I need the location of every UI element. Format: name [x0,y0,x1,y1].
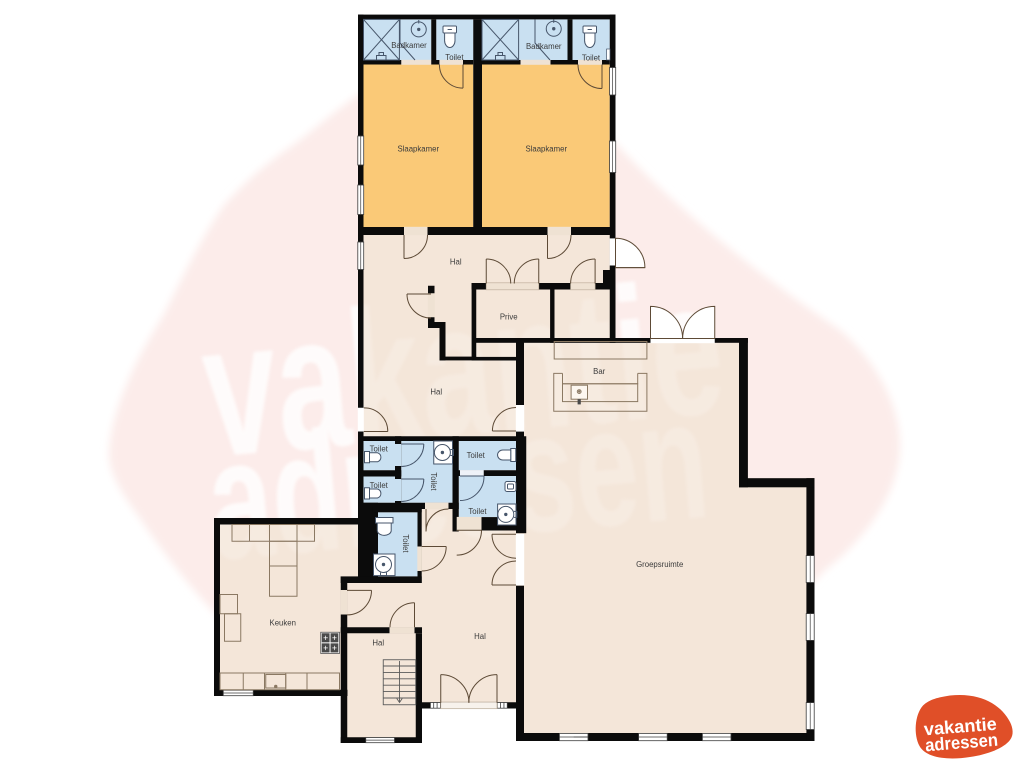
svg-text:Bar: Bar [593,367,606,376]
svg-text:Toilet: Toilet [370,445,389,454]
svg-text:Toilet: Toilet [445,53,464,62]
svg-text:Keuken: Keuken [270,619,296,628]
svg-text:Hal: Hal [372,639,384,648]
svg-text:Toilet: Toilet [467,451,486,460]
svg-text:Hal: Hal [430,388,442,397]
svg-text:Hal: Hal [474,632,486,641]
svg-text:Toilet: Toilet [582,54,601,63]
svg-text:Slaapkamer: Slaapkamer [397,145,439,154]
svg-text:Toilet: Toilet [370,481,389,490]
svg-text:Groepsruimte: Groepsruimte [636,560,683,569]
svg-text:Toilet: Toilet [401,534,410,553]
svg-text:Toilet: Toilet [468,507,487,516]
svg-text:Slaapkamer: Slaapkamer [525,145,567,154]
svg-text:Badkamer: Badkamer [526,42,562,51]
svg-text:Badkamer: Badkamer [391,41,427,50]
svg-text:Prive: Prive [500,313,518,322]
svg-text:Toilet: Toilet [429,472,438,491]
svg-text:Hal: Hal [450,258,462,267]
